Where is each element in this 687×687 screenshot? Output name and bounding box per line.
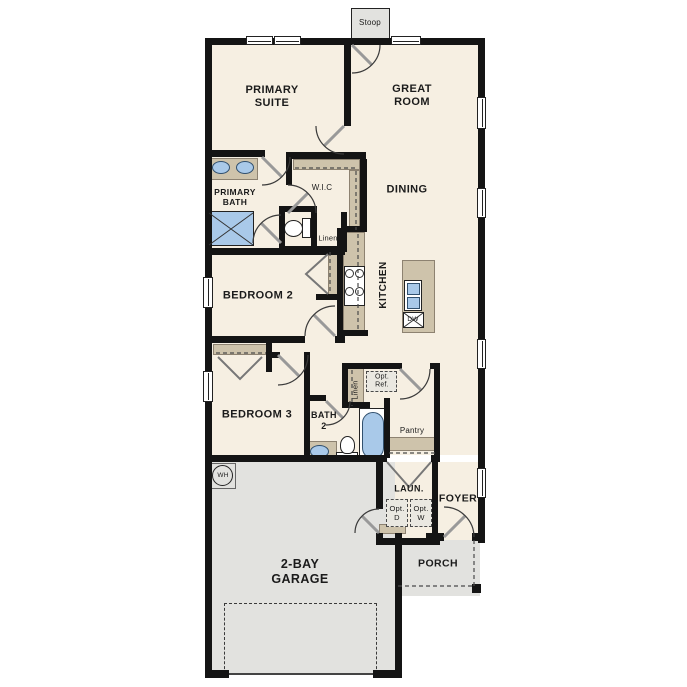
bifold-bedroom3-closet <box>218 357 262 379</box>
pantry-label: Pantry <box>400 426 424 436</box>
foyer-label: FOYER <box>439 493 477 506</box>
primary-suite-label: PRIMARY SUITE <box>245 84 298 110</box>
linen-bath2-label: Linen <box>351 380 360 399</box>
dishwasher-label: DW <box>407 316 418 324</box>
shower-x <box>209 213 253 245</box>
door-leaf-primary-suite <box>324 126 344 146</box>
bedroom3-label: BEDROOM 3 <box>222 408 292 421</box>
bath2-label: BATH 2 <box>311 410 337 432</box>
wic-label: W.I.C <box>312 183 333 193</box>
door-leaf-stoop <box>352 45 372 65</box>
water-heater-label: WH <box>217 472 228 480</box>
door-swing-overlay <box>0 0 687 687</box>
laundry-label: LAUN. <box>394 484 424 495</box>
door-leaf-pantry <box>400 369 421 390</box>
opt-d-label: Opt. D <box>390 504 405 522</box>
opt-ref-label: Opt. Ref. <box>375 374 389 391</box>
door-leaf-water-closet <box>261 223 281 243</box>
dining-label: DINING <box>387 183 428 196</box>
great-room-label: GREAT ROOM <box>392 83 432 109</box>
door-leaf-bedroom3 <box>278 355 299 376</box>
opt-w-label: Opt. W <box>414 504 429 522</box>
linen-primary-label: Linen <box>318 234 337 243</box>
garage-label: 2-BAY GARAGE <box>271 557 328 587</box>
door-leaf-wic <box>288 193 308 213</box>
door-leaf-front <box>444 516 465 537</box>
bedroom2-label: BEDROOM 2 <box>223 289 293 302</box>
kitchen-label: KITCHEN <box>378 261 390 308</box>
door-leaf-primary-bath <box>262 157 282 177</box>
floor-plan: Stoop PRIMARY SUITE GREAT ROOM PRIMARY B… <box>0 0 687 687</box>
bifold-bedroom2-closet <box>306 254 328 294</box>
door-leaf-garage <box>362 516 379 533</box>
porch-label: PORCH <box>418 558 458 571</box>
door-leaf-bedroom2 <box>314 315 335 336</box>
stoop-label: Stoop <box>359 18 381 28</box>
primary-bath-label: PRIMARY BATH <box>214 187 256 207</box>
